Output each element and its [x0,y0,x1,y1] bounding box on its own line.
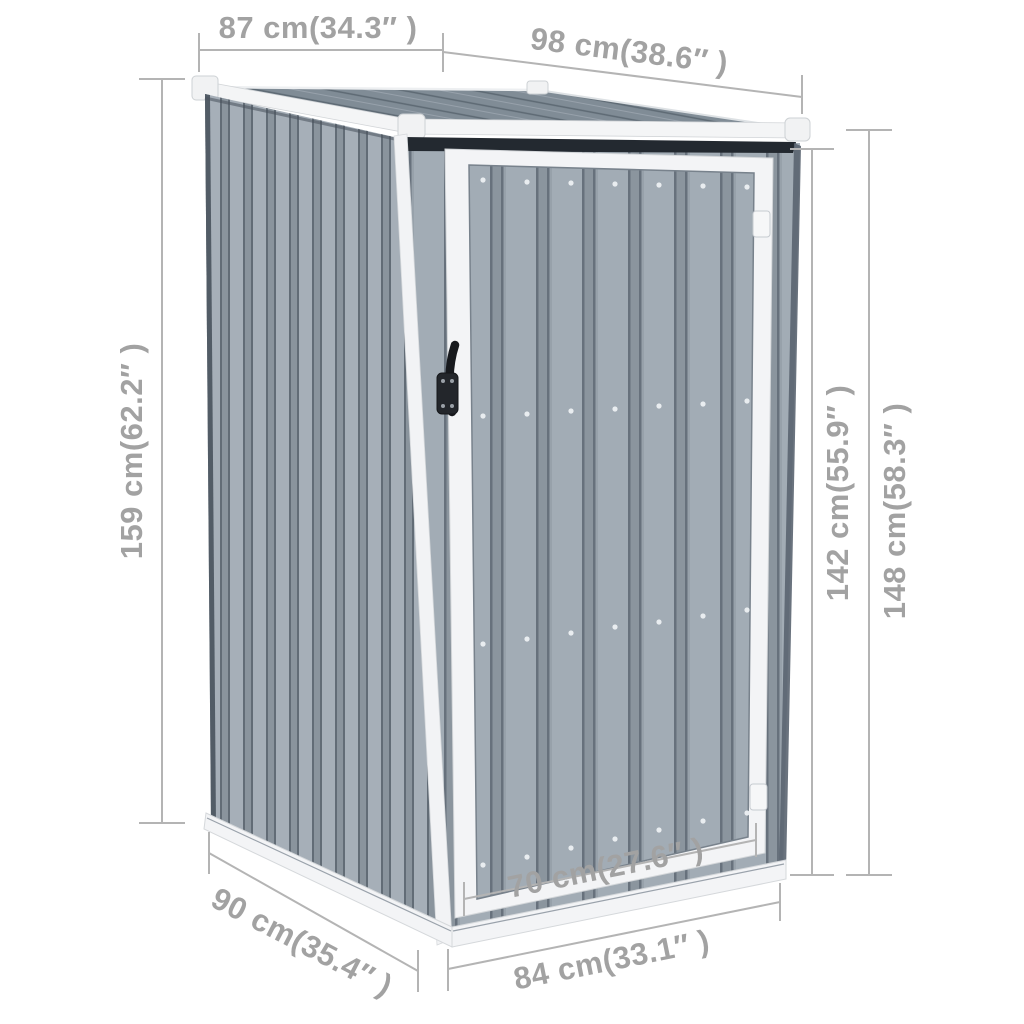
roof-corner-cap-back-right [527,81,548,94]
door-handle-plate [437,373,458,414]
shed-illustration: 87 cm(34.3″ ) 98 cm(38.6″ ) 159 cm(62.2″… [0,0,1024,1024]
door-panel [469,165,754,899]
dim-top-left: 87 cm(34.3″ ) [199,10,443,72]
roof-corner-cap-front-right [785,118,810,141]
dim-label-bottom-right: 84 cm(33.1″ ) [511,923,713,997]
dim-left: 159 cm(62.2″ ) [114,79,185,823]
dim-right-outer: 148 cm(58.3″ ) [846,130,912,875]
dim-label-top-left: 87 cm(34.3″ ) [219,10,418,45]
door-hinge-bottom [750,784,767,810]
dim-label-right-outer: 148 cm(58.3″ ) [877,403,912,620]
door-hinge-top [753,211,770,237]
dim-label-top-right: 98 cm(38.6″ ) [528,21,730,81]
dim-label-right-inner: 142 cm(55.9″ ) [820,385,855,602]
door [437,149,773,918]
dim-label-left: 159 cm(62.2″ ) [114,343,149,560]
dim-right-inner: 142 cm(55.9″ ) [790,149,855,875]
shed-dimension-illustration: 87 cm(34.3″ ) 98 cm(38.6″ ) 159 cm(62.2″… [0,0,1024,1024]
